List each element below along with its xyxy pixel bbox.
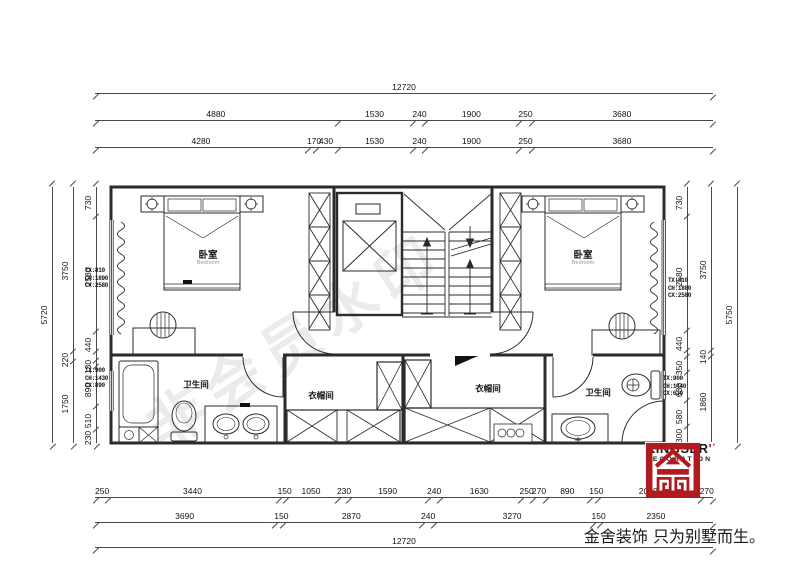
dim-value: 240 bbox=[427, 486, 439, 496]
window-note-left-top: TX:810 CH:1890 CX:2580 bbox=[85, 267, 108, 290]
dim-segment: 4280 bbox=[95, 133, 307, 148]
room-label-closet-left: 衣帽间 bbox=[308, 392, 334, 401]
dim-value: 4280 bbox=[95, 136, 307, 146]
window-note-right-top: TX:810 CH:1880 CX:2580 bbox=[668, 277, 691, 300]
dim-value: 240 bbox=[421, 511, 433, 521]
dim-segment: 430 bbox=[315, 133, 336, 148]
dim-segment: 240 bbox=[421, 508, 433, 523]
dim-segment: 5720 bbox=[38, 187, 53, 443]
dim-col-left-overall: 5720 bbox=[38, 187, 53, 443]
staircase bbox=[402, 194, 492, 317]
dim-value: 730 bbox=[674, 196, 684, 210]
dim-value: 3750 bbox=[698, 261, 708, 280]
dim-value: 1860 bbox=[698, 392, 708, 411]
dim-value: 1630 bbox=[439, 486, 520, 496]
dim-segment: 4880 bbox=[95, 106, 337, 121]
dim-value: 250 bbox=[520, 486, 532, 496]
toilet-right bbox=[622, 371, 660, 399]
dim-value: 1530 bbox=[337, 109, 413, 119]
dim-segment: 3680 bbox=[531, 133, 713, 148]
vanity-right bbox=[552, 414, 608, 443]
dim-value: 1590 bbox=[348, 486, 427, 496]
dim-value: 250 bbox=[95, 486, 107, 496]
dim-segment: 1750 bbox=[59, 365, 74, 443]
dim-segment: 1900 bbox=[424, 133, 518, 148]
desk-chair-left bbox=[133, 312, 195, 355]
dim-value: 150 bbox=[274, 511, 281, 521]
dim-segment: 3440 bbox=[107, 483, 277, 498]
dim-col-right-inner: 7302580440350630580300 bbox=[673, 187, 688, 443]
dim-value: 350 bbox=[674, 361, 684, 375]
dim-value: 270 bbox=[532, 486, 545, 496]
dim-value: 3680 bbox=[531, 109, 713, 119]
dim-segment: 250 bbox=[518, 133, 530, 148]
dim-segment: 730 bbox=[82, 187, 97, 220]
dim-segment: 3680 bbox=[531, 106, 713, 121]
dim-value: 250 bbox=[518, 109, 530, 119]
dim-value: 510 bbox=[83, 414, 93, 428]
dim-value: 250 bbox=[518, 136, 530, 146]
dim-value: 1530 bbox=[337, 136, 413, 146]
dim-value: 1900 bbox=[424, 109, 518, 119]
dim-value: 12720 bbox=[95, 82, 713, 92]
dim-value: 3690 bbox=[95, 511, 274, 521]
dim-value: 5750 bbox=[724, 306, 734, 325]
desk-chair-right bbox=[592, 313, 660, 355]
dim-segment: 150 bbox=[278, 483, 285, 498]
vanity-left bbox=[205, 403, 277, 442]
dim-value: 240 bbox=[412, 136, 424, 146]
dim-value: 890 bbox=[545, 486, 589, 496]
threshold-wedge bbox=[455, 356, 478, 366]
dim-value: 440 bbox=[674, 337, 684, 351]
dim-value: 1900 bbox=[424, 136, 518, 146]
kingser-logo: KINGSER' DECORATION bbox=[645, 442, 713, 464]
kingser-logo-icon bbox=[645, 442, 701, 498]
dim-value: 430 bbox=[315, 136, 336, 146]
room-label-bath-left: 卫生间 bbox=[183, 381, 209, 390]
dim-segment: 1530 bbox=[337, 106, 413, 121]
dim-value: 230 bbox=[337, 486, 348, 496]
dim-value: 1050 bbox=[285, 486, 337, 496]
dim-col-right-mid: 37501401860 bbox=[697, 187, 712, 443]
dim-value: 580 bbox=[674, 410, 684, 424]
dim-col-left-mid: 37502201750 bbox=[59, 187, 74, 443]
room-label-closet-right: 衣帽间 bbox=[475, 385, 501, 394]
dim-value: 170 bbox=[307, 136, 315, 146]
dim-value: 150 bbox=[278, 486, 285, 496]
dim-col-left-inner: 7302580440130890510230 bbox=[82, 187, 97, 443]
dim-value: 2870 bbox=[282, 511, 421, 521]
doors bbox=[243, 312, 664, 443]
dim-value: 4880 bbox=[95, 109, 337, 119]
dim-value: 240 bbox=[412, 109, 424, 119]
dim-value: 150 bbox=[589, 486, 596, 496]
dim-segment: 1590 bbox=[348, 483, 427, 498]
dim-segment: 1530 bbox=[337, 133, 413, 148]
dim-value: 1750 bbox=[60, 394, 70, 413]
wardrobe-right bbox=[500, 193, 521, 330]
closet-units-left bbox=[287, 362, 402, 442]
window-note-left-bottom: TX:900 CH:1430 CX:890 bbox=[85, 367, 108, 390]
dim-segment: 1900 bbox=[424, 106, 518, 121]
dim-segment: 5750 bbox=[723, 187, 738, 443]
dim-segment: 2350 bbox=[599, 508, 713, 523]
dim-row-top-overall: 12720 bbox=[95, 79, 713, 94]
dim-value: 3270 bbox=[433, 511, 592, 521]
dim-value: 440 bbox=[83, 338, 93, 352]
dim-row-top-inner: 4280170430153024019002503680 bbox=[95, 133, 713, 148]
dim-value: 3680 bbox=[531, 136, 713, 146]
dim-segment: 240 bbox=[412, 106, 424, 121]
dim-row-top-mid: 4880153024019002503680 bbox=[95, 106, 713, 121]
room-label-bedroom-right: 卧室 Bedroom bbox=[572, 251, 594, 267]
dim-segment: 170 bbox=[307, 133, 315, 148]
dim-segment: 150 bbox=[592, 508, 599, 523]
dim-segment: 1630 bbox=[439, 483, 520, 498]
dim-col-right-overall: 5750 bbox=[723, 187, 738, 443]
dim-value: 270 bbox=[700, 486, 713, 496]
curtains bbox=[118, 222, 658, 334]
dim-row-bottom-inner: 2503440150105023015902401630250270890150… bbox=[95, 483, 713, 498]
window-note-right-bottom: TX:900 CH:1440 CX:630 bbox=[663, 375, 686, 398]
room-label-bath-right: 卫生间 bbox=[585, 389, 611, 398]
dim-segment: 230 bbox=[82, 433, 97, 443]
bed-right bbox=[522, 196, 644, 290]
brand-mark: ' bbox=[709, 441, 713, 456]
bathtub bbox=[119, 361, 158, 443]
dim-segment: 890 bbox=[545, 483, 589, 498]
dim-segment: 250 bbox=[95, 483, 107, 498]
dim-value: 730 bbox=[83, 196, 93, 210]
dim-segment: 12720 bbox=[95, 79, 713, 94]
dim-value: 5720 bbox=[39, 306, 49, 325]
brand-slogan: 金舍装饰 只为别墅而生。 bbox=[420, 523, 765, 547]
dim-segment: 270 bbox=[700, 483, 713, 498]
dim-value: 230 bbox=[83, 431, 93, 445]
dim-value: 150 bbox=[592, 511, 599, 521]
toilet-left bbox=[171, 401, 197, 441]
dim-value: 3440 bbox=[107, 486, 277, 496]
bed-left bbox=[141, 196, 263, 290]
dim-segment: 3270 bbox=[433, 508, 592, 523]
dim-segment: 250 bbox=[520, 483, 532, 498]
dim-segment: 150 bbox=[589, 483, 596, 498]
closet-units-right bbox=[405, 360, 545, 442]
dim-segment: 240 bbox=[427, 483, 439, 498]
dim-segment: 1050 bbox=[285, 483, 337, 498]
dim-segment: 150 bbox=[274, 508, 281, 523]
dim-segment: 270 bbox=[532, 483, 545, 498]
dim-segment: 3750 bbox=[59, 187, 74, 355]
elevator bbox=[337, 193, 402, 315]
dim-row-bottom-mid: 3690150287024032701502350 bbox=[95, 508, 713, 523]
dim-segment: 3690 bbox=[95, 508, 274, 523]
room-label-bedroom-left: 卧室 Bedroom bbox=[197, 251, 219, 267]
wardrobe-left bbox=[309, 193, 330, 330]
dim-segment: 240 bbox=[412, 133, 424, 148]
dim-segment: 730 bbox=[673, 187, 688, 220]
floorplan-sheet: 非会员水印 bbox=[0, 0, 800, 566]
dim-value: 3750 bbox=[60, 261, 70, 280]
dim-segment: 250 bbox=[518, 106, 530, 121]
dim-value: 2350 bbox=[599, 511, 713, 521]
dim-segment: 1860 bbox=[697, 360, 712, 443]
dim-segment: 3750 bbox=[697, 187, 712, 354]
dim-segment: 230 bbox=[337, 483, 348, 498]
dim-segment: 2870 bbox=[282, 508, 421, 523]
